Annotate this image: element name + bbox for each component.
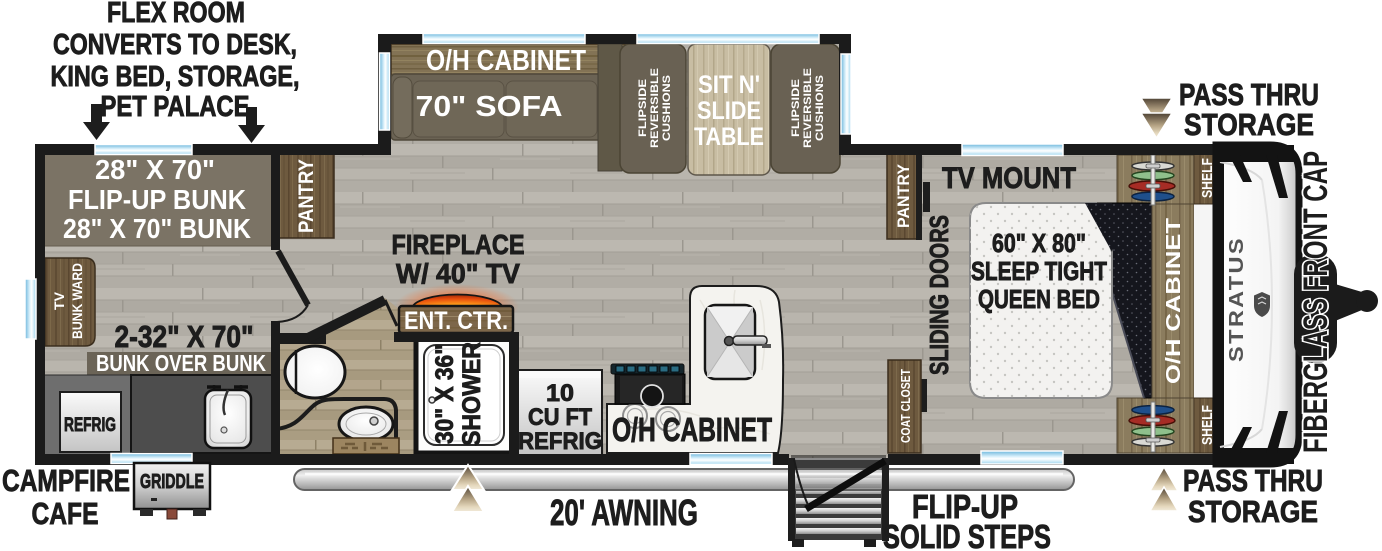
- svg-text:SOLID STEPS: SOLID STEPS: [883, 518, 1051, 551]
- svg-text:SLEEP TIGHT: SLEEP TIGHT: [971, 256, 1107, 286]
- svg-text:SHOWER: SHOWER: [458, 342, 486, 446]
- svg-text:SLIDE: SLIDE: [697, 97, 761, 125]
- svg-text:TV: TV: [51, 291, 67, 310]
- svg-text:REVERSIBLE: REVERSIBLE: [649, 68, 661, 148]
- svg-text:TV MOUNT: TV MOUNT: [942, 162, 1076, 195]
- svg-text:STORAGE: STORAGE: [1188, 494, 1318, 529]
- svg-text:FLIPSIDE: FLIPSIDE: [790, 79, 802, 137]
- svg-text:CAFE: CAFE: [32, 496, 99, 531]
- svg-text:CAMPFIRE: CAMPFIRE: [2, 463, 130, 498]
- svg-text:70" SOFA: 70" SOFA: [416, 91, 563, 123]
- svg-text:CUSHIONS: CUSHIONS: [814, 75, 826, 141]
- svg-text:FLEX ROOM: FLEX ROOM: [107, 0, 245, 29]
- svg-text:PANTRY: PANTRY: [295, 159, 318, 233]
- svg-text:20' AWNING: 20' AWNING: [550, 492, 698, 533]
- svg-text:REFRIG: REFRIG: [64, 415, 116, 436]
- svg-text:ENT. CTR.: ENT. CTR.: [404, 307, 508, 335]
- svg-text:2-32" X 70": 2-32" X 70": [115, 319, 254, 354]
- svg-text:KING BED, STORAGE,: KING BED, STORAGE,: [51, 61, 300, 93]
- svg-text:TABLE: TABLE: [694, 123, 764, 151]
- svg-text:O/H CABINET: O/H CABINET: [1163, 218, 1185, 384]
- svg-text:30" X 36": 30" X 36": [431, 344, 459, 444]
- svg-text:O/H CABINET: O/H CABINET: [612, 411, 772, 448]
- svg-text:PET PALACE: PET PALACE: [101, 91, 250, 123]
- svg-text:CU FT: CU FT: [528, 404, 592, 431]
- svg-text:W/ 40" TV: W/ 40" TV: [396, 258, 520, 289]
- svg-text:28" X 70": 28" X 70": [95, 154, 215, 185]
- svg-text:FIREPLACE: FIREPLACE: [392, 229, 525, 260]
- svg-text:28" X 70" BUNK: 28" X 70" BUNK: [63, 213, 251, 244]
- svg-text:CONVERTS TO DESK,: CONVERTS TO DESK,: [53, 29, 297, 61]
- svg-text:SIT N': SIT N': [698, 71, 760, 99]
- svg-text:O/H CABINET: O/H CABINET: [426, 45, 586, 77]
- svg-text:CUSHIONS: CUSHIONS: [661, 75, 673, 141]
- svg-text:STORAGE: STORAGE: [1184, 107, 1314, 142]
- svg-text:REVERSIBLE: REVERSIBLE: [802, 68, 814, 148]
- svg-text:BUNK WARD: BUNK WARD: [69, 263, 85, 339]
- svg-text:FLIPSIDE: FLIPSIDE: [637, 79, 649, 137]
- svg-text:FLIP-UP BUNK: FLIP-UP BUNK: [68, 184, 246, 215]
- svg-text:SLIDING DOORS: SLIDING DOORS: [924, 215, 954, 375]
- svg-text:10: 10: [546, 380, 574, 407]
- svg-text:60" X 80": 60" X 80": [992, 228, 1086, 258]
- svg-text:STRATUS: STRATUS: [1226, 236, 1248, 362]
- svg-text:FIBERGLASS FRONT CAP: FIBERGLASS FRONT CAP: [1297, 151, 1335, 453]
- svg-text:GRIDDLE: GRIDDLE: [140, 471, 204, 493]
- svg-text:PASS THRU: PASS THRU: [1183, 463, 1323, 498]
- svg-text:COAT CLOSET: COAT CLOSET: [899, 369, 913, 443]
- svg-text:PANTRY: PANTRY: [894, 163, 913, 228]
- svg-text:REFRIG: REFRIG: [518, 428, 602, 455]
- svg-text:QUEEN BED: QUEEN BED: [978, 284, 1100, 314]
